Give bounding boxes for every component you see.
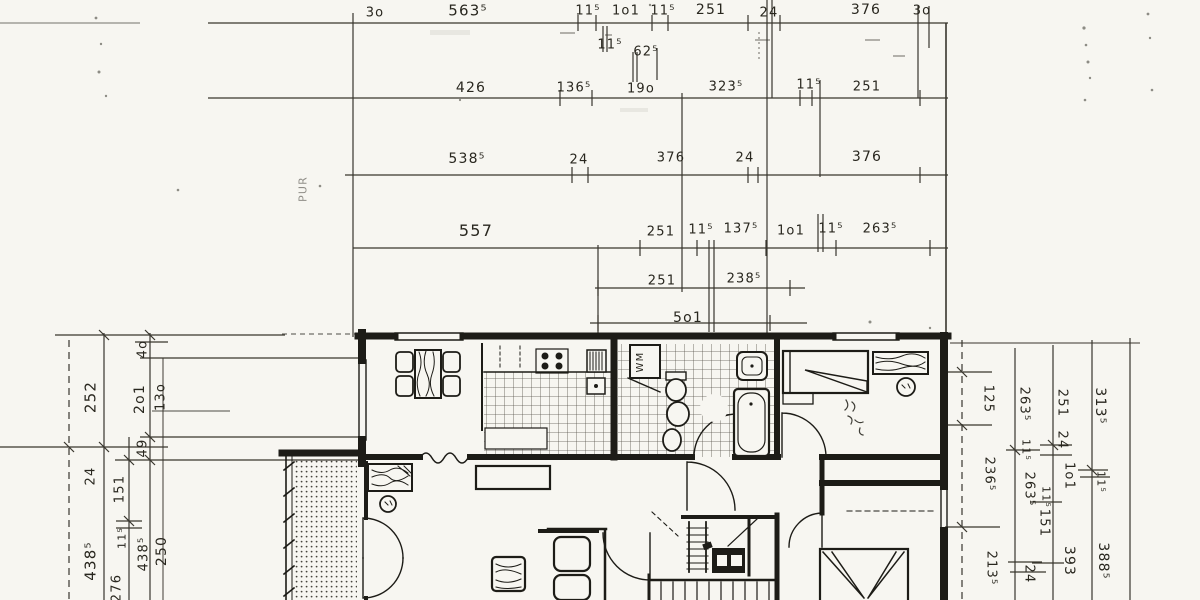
stair-block [649,519,777,600]
upper-dimension-lines [0,0,948,345]
living-room-furniture [368,453,606,600]
floorplan-drawing [0,0,1200,600]
scan-noise [95,4,1154,329]
dining-table-and-chairs [396,350,460,398]
balcony-wall [284,455,294,600]
second-bed [820,549,908,600]
stool-2 [380,496,396,512]
right-dimension-lines [945,338,1140,600]
stove [536,349,568,373]
stool [897,378,915,396]
floorplan-scan: 3o563⁵11⁵1o111⁵251243763o11⁵62⁵426136⁵19… [0,0,1200,600]
bedroom-furniture [783,351,928,435]
bidet [663,429,681,451]
apartment-plan [282,333,948,600]
sideboard [476,466,550,489]
stair-treads [661,582,769,600]
wc-toilet [667,402,689,426]
bed [783,351,868,393]
sofa-cushion [554,537,590,571]
toilet [666,379,686,401]
balcony-floor [294,459,357,600]
sofa-cushion [554,575,590,600]
handwritten-scribble [845,400,863,435]
